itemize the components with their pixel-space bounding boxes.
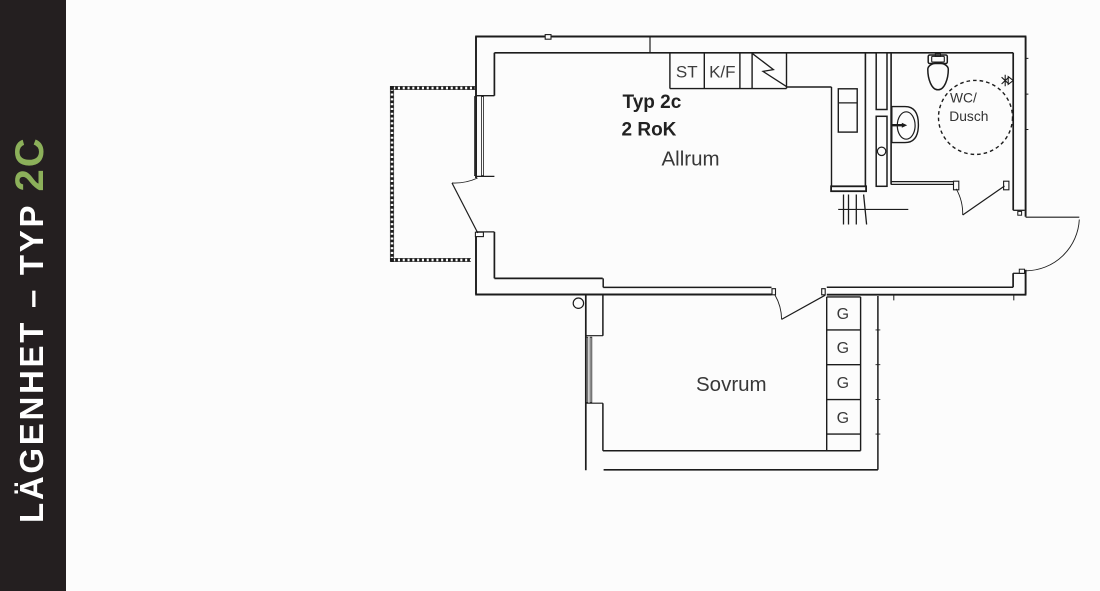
svg-text:Allrum: Allrum	[662, 147, 720, 170]
svg-text:G: G	[837, 410, 849, 427]
svg-text:Sovrum: Sovrum	[696, 373, 767, 396]
svg-text:G: G	[837, 340, 849, 357]
svg-text:WC/: WC/	[950, 90, 977, 105]
svg-text:K/F: K/F	[709, 62, 735, 81]
svg-text:Dusch: Dusch	[949, 109, 988, 124]
svg-text:G: G	[837, 375, 849, 392]
svg-text:ST: ST	[676, 62, 698, 81]
svg-text:2 RoK: 2 RoK	[622, 119, 677, 140]
svg-text:Typ 2c: Typ 2c	[623, 92, 682, 113]
svg-text:G: G	[837, 306, 849, 323]
